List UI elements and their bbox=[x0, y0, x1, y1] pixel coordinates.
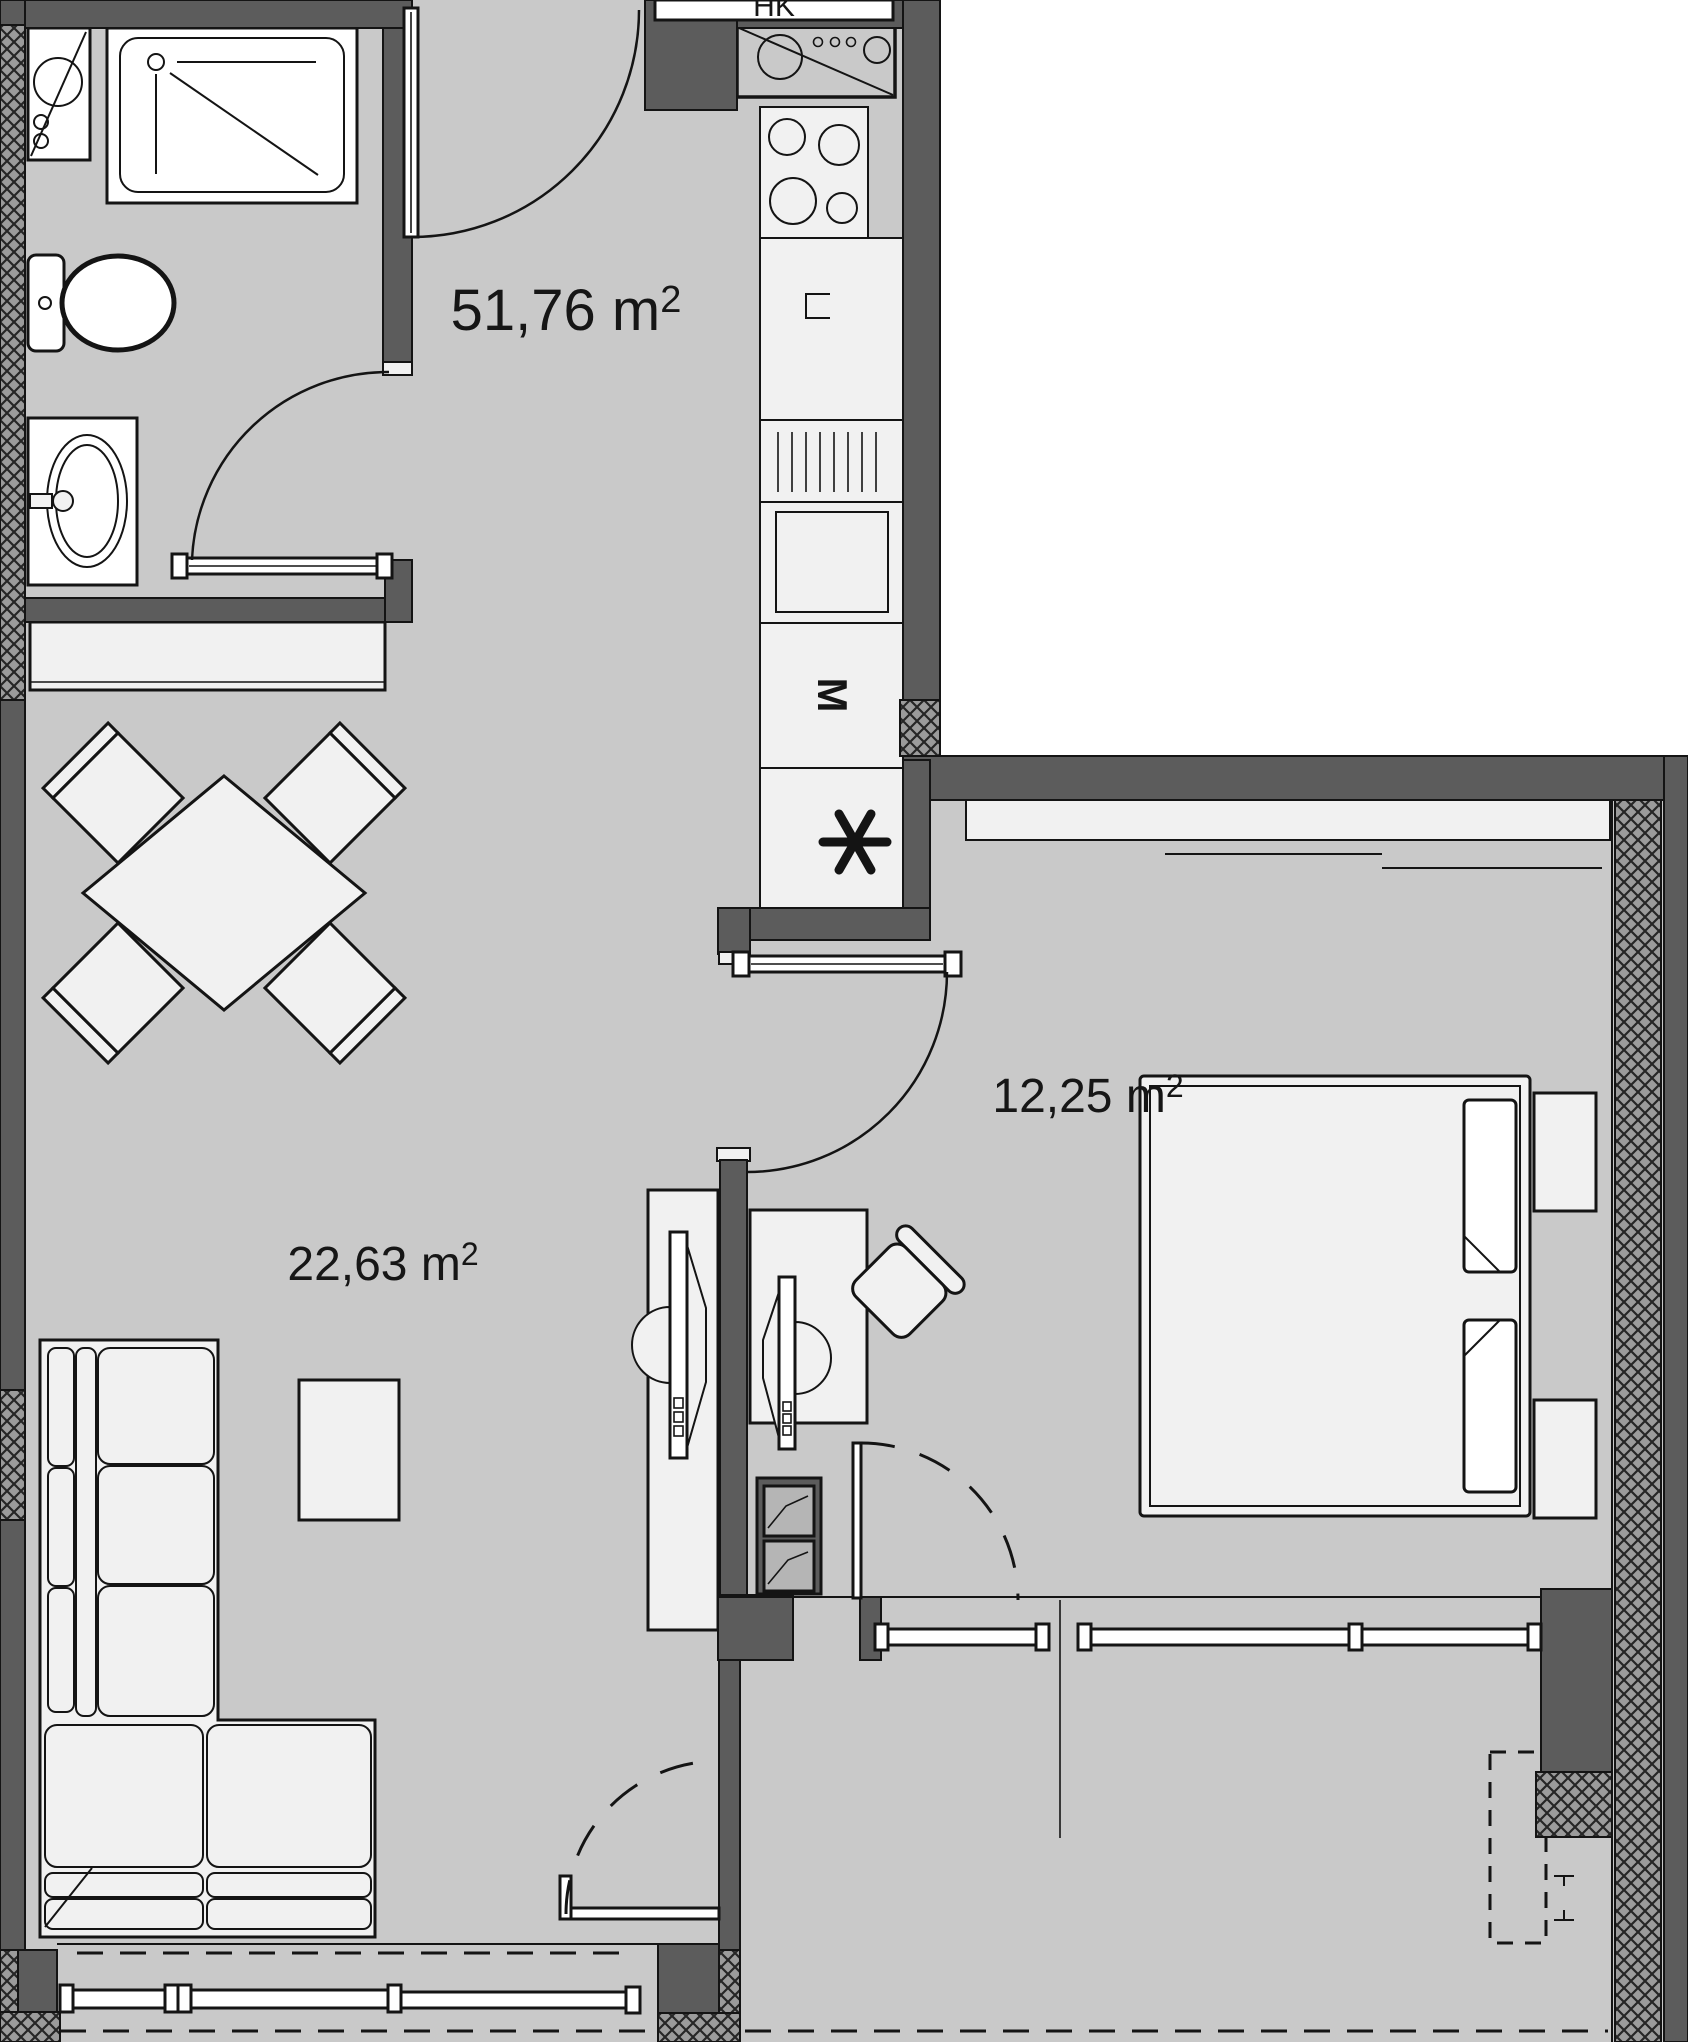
kitchen-sink-icon bbox=[737, 25, 895, 97]
bedroom-area-label: 12,25 m2 bbox=[992, 1068, 1183, 1123]
stove-icon bbox=[760, 107, 868, 238]
oven-icon bbox=[760, 502, 903, 623]
pillow bbox=[1464, 1100, 1516, 1272]
bed bbox=[1140, 1076, 1530, 1516]
total-area-label: 51,76 m2 bbox=[451, 278, 682, 343]
microwave-label: M bbox=[809, 678, 856, 713]
desk bbox=[750, 1210, 867, 1449]
toilet-icon bbox=[28, 255, 174, 351]
shaft-label: HK bbox=[753, 0, 795, 23]
coffee-table bbox=[299, 1380, 399, 1520]
microwave-unit: M bbox=[760, 623, 903, 768]
dishwasher-icon bbox=[760, 420, 903, 502]
hall-sideboard bbox=[30, 622, 385, 690]
floor-plan: M bbox=[0, 0, 1688, 2042]
nightstand bbox=[1534, 1400, 1596, 1518]
living-area-label: 22,63 m2 bbox=[287, 1236, 478, 1291]
pillow bbox=[1464, 1320, 1516, 1492]
drawer-unit bbox=[757, 1478, 821, 1594]
shaft-box: HK bbox=[655, 0, 893, 23]
nightstand bbox=[1534, 1093, 1596, 1211]
kitchen-counter bbox=[760, 238, 903, 420]
washing-machine-icon bbox=[28, 28, 90, 160]
washbasin-icon bbox=[28, 418, 137, 585]
freezer-unit bbox=[760, 768, 903, 908]
shower-icon bbox=[107, 28, 357, 203]
